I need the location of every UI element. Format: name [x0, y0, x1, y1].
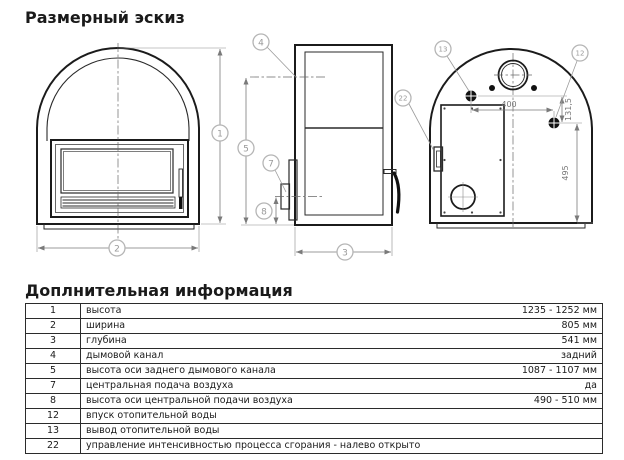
bolt-left [489, 85, 495, 91]
front-view: 1 2 [37, 43, 228, 256]
callout-7: 7 [263, 155, 279, 171]
row-value [484, 424, 603, 439]
row-number: 1 [26, 304, 81, 319]
front-door-handle [179, 169, 183, 209]
callout-13: 13 [435, 41, 451, 57]
callout-3: 3 [337, 244, 353, 260]
row-value: задний [484, 349, 603, 364]
side-view: 4 5 7 8 3 [238, 34, 399, 260]
row-description: высота оси центральной подачи воздуха [81, 394, 485, 409]
dim-131-label: 131,5 [564, 98, 573, 121]
row-value: 805 мм [484, 319, 603, 334]
callout-1-label: 1 [217, 130, 223, 140]
row-description: ширина [81, 319, 485, 334]
dim-400-label: 400 [501, 100, 516, 109]
row-number: 4 [26, 349, 81, 364]
callout-2: 2 [109, 240, 125, 256]
table-row: 5 высота оси заднего дымового канала 108… [26, 364, 603, 379]
row-value [484, 439, 603, 454]
row-number: 12 [26, 409, 81, 424]
row-value: 1087 - 1107 мм [484, 364, 603, 379]
callout-13-label: 13 [439, 46, 448, 54]
callout-2-label: 2 [114, 245, 120, 255]
callout-1: 1 [212, 125, 228, 141]
callout-4: 4 [253, 34, 269, 50]
callout-22: 22 [395, 90, 411, 106]
water-outlet-port [465, 90, 478, 103]
row-description: глубина [81, 334, 485, 349]
table-row: 1 высота 1235 - 1252 мм [26, 304, 603, 319]
table-row: 3 глубина 541 мм [26, 334, 603, 349]
row-description: высота оси заднего дымового канала [81, 364, 485, 379]
callout-22-label: 22 [399, 95, 408, 103]
table-row: 13 вывод отопительной воды [26, 424, 603, 439]
table-row: 2 ширина 805 мм [26, 319, 603, 334]
row-description: высота [81, 304, 485, 319]
row-value: 490 - 510 мм [484, 394, 603, 409]
callout-7-label: 7 [268, 160, 274, 170]
rear-panel [441, 105, 504, 216]
table-row: 22 управление интенсивностью процесса сг… [26, 439, 603, 454]
bolt-right [531, 85, 537, 91]
row-description: центральная подача воздуха [81, 379, 485, 394]
callout-5: 5 [238, 140, 254, 156]
info-table: 1 высота 1235 - 1252 мм 2 ширина 805 мм … [25, 303, 603, 454]
callout-3-label: 3 [342, 249, 348, 259]
table-row: 8 высота оси центральной подачи воздуха … [26, 394, 603, 409]
row-value: 1235 - 1252 мм [484, 304, 603, 319]
row-value: 541 мм [484, 334, 603, 349]
water-inlet-port [548, 117, 561, 130]
row-number: 7 [26, 379, 81, 394]
callout-8-label: 8 [261, 208, 267, 218]
info-heading: Доплнительная информация [25, 281, 293, 300]
row-description: дымовой канал [81, 349, 485, 364]
row-value [484, 409, 603, 424]
row-number: 5 [26, 364, 81, 379]
catalog-page: { "page": { "title": "Размерный эскиз" }… [0, 0, 624, 460]
row-description: вывод отопительной воды [81, 424, 485, 439]
table-row: 12 впуск отопительной воды [26, 409, 603, 424]
row-number: 8 [26, 394, 81, 409]
table-row: 7 центральная подача воздуха да [26, 379, 603, 394]
row-description: управление интенсивностью процесса сгора… [81, 439, 485, 454]
callout-12: 12 [572, 45, 588, 61]
callout-5-label: 5 [243, 145, 249, 155]
dimensional-sketch: 1 2 4 5 [0, 0, 624, 272]
row-number: 13 [26, 424, 81, 439]
callout-4-label: 4 [258, 39, 264, 49]
row-value: да [484, 379, 603, 394]
callout-8: 8 [256, 203, 272, 219]
rear-view: 400 131,5 495 13 12 22 [395, 41, 593, 228]
dim-495-label: 495 [561, 165, 570, 180]
row-number: 3 [26, 334, 81, 349]
callout-12-label: 12 [576, 50, 585, 58]
row-number: 22 [26, 439, 81, 454]
row-description: впуск отопительной воды [81, 409, 485, 424]
table-row: 4 дымовой канал задний [26, 349, 603, 364]
row-number: 2 [26, 319, 81, 334]
